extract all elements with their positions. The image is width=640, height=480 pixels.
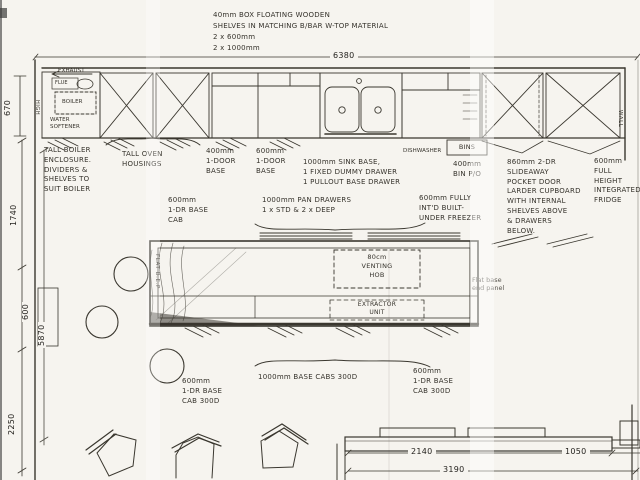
wall-lines (35, 60, 638, 480)
dim-2140: 2140 (408, 448, 436, 456)
dishwasher-label: DISHWASHER (403, 148, 441, 155)
note-base-cab-bottom-right: 600mm 1-DR BASE CAB 300D (413, 367, 453, 396)
door-swing-hatches-island (185, 234, 593, 337)
island (150, 233, 478, 326)
plan-linework (0, 0, 640, 480)
note-base-cab-bottom-left: 600mm 1-DR BASE CAB 300D (182, 377, 222, 406)
note-base-cab-mid: 600mm 1-DR BASE CAB (168, 196, 208, 225)
note-larder: 860mm 2-DR SLIDEAWAY POCKET DOOR LARDER … (507, 158, 581, 236)
note-boiler-enclosure: TALL BOILER ENCLOSURE. DIVIDERS & SHELVE… (44, 146, 91, 195)
exhaust-label: EXHAUST (58, 68, 85, 75)
top-shelving-note: 40mm BOX FLOATING WOODEN SHELVES IN MATC… (213, 10, 388, 53)
dining-chairs (86, 424, 308, 478)
note-oven-housings: TALL OVEN HOUSINGS (122, 150, 163, 170)
note-flat-end-left: FLAT B.E.P (154, 254, 160, 289)
note-base-400: 400mm 1-DOOR BASE (206, 147, 236, 176)
flue-label: FLUE (55, 80, 68, 86)
dim-670: 670 (4, 98, 12, 118)
floating-shelves (260, 233, 460, 239)
high-label: HIGH (34, 100, 40, 115)
bins-label: BINS (449, 143, 485, 152)
dim-overall-width: 6380 (330, 52, 358, 60)
water-softener-label: WATER SOFTENER (50, 117, 80, 131)
dim-1740: 1740 (10, 202, 18, 228)
note-bin-pullout: 400mm BIN P/O (453, 160, 481, 180)
dim-5870: 5870 (38, 322, 46, 348)
dim-1050: 1050 (562, 448, 590, 456)
note-sink-base: 1000mm SINK BASE, 1 FIXED DUMMY DRAWER 1… (303, 158, 400, 187)
note-extractor: EXTRACTOR UNIT (330, 301, 424, 318)
note-freezer: 600mm FULLY INT'D BUILT- UNDER FREEZER (419, 194, 481, 223)
dim-2250: 2250 (8, 411, 16, 437)
cabinet-run (42, 73, 625, 155)
note-base-cabs-1000: 1000mm BASE CABS 300D (258, 373, 357, 383)
dim-3190: 3190 (440, 466, 468, 474)
wall-label: WALL (617, 110, 623, 127)
kitchen-plan-sheet: 40mm BOX FLOATING WOODEN SHELVES IN MATC… (0, 0, 640, 480)
boiler-label: BOILER (62, 99, 83, 106)
note-pan-drawers: 1000mm PAN DRAWERS 1 x STD & 2 x DEEP (262, 196, 351, 216)
note-venting-hob: 80cm VENTING HOB (338, 253, 416, 280)
dim-600: 600 (22, 302, 30, 322)
wood-grain (150, 243, 246, 325)
note-flat-end-panel: Flat base end panel (472, 276, 504, 293)
note-fridge: 600mm FULL HEIGHT INTEGRATED FRIDGE (594, 157, 640, 206)
note-base-600: 600mm 1-DOOR BASE (256, 147, 286, 176)
